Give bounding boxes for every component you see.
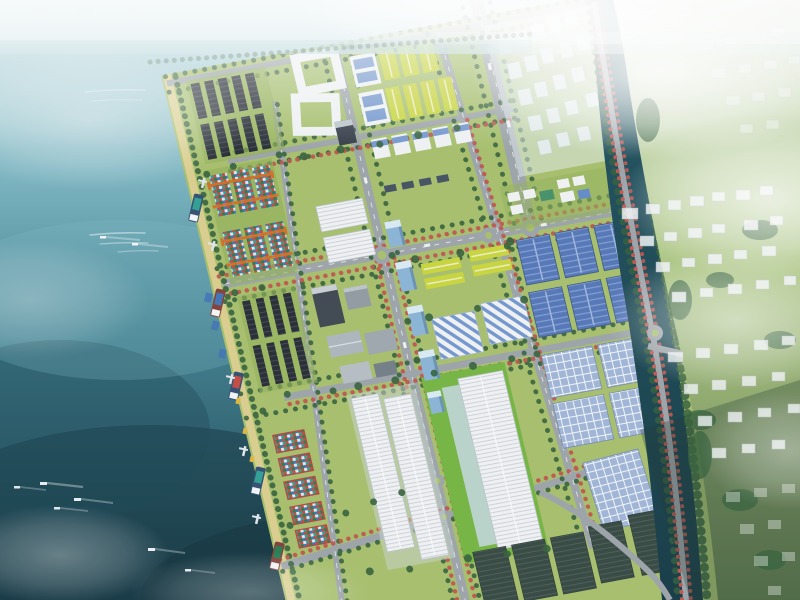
render-canvas bbox=[0, 0, 800, 600]
aerial-port-industrial-park-render bbox=[0, 0, 800, 600]
clouds bbox=[0, 0, 800, 600]
atmosphere-tint bbox=[0, 0, 800, 600]
